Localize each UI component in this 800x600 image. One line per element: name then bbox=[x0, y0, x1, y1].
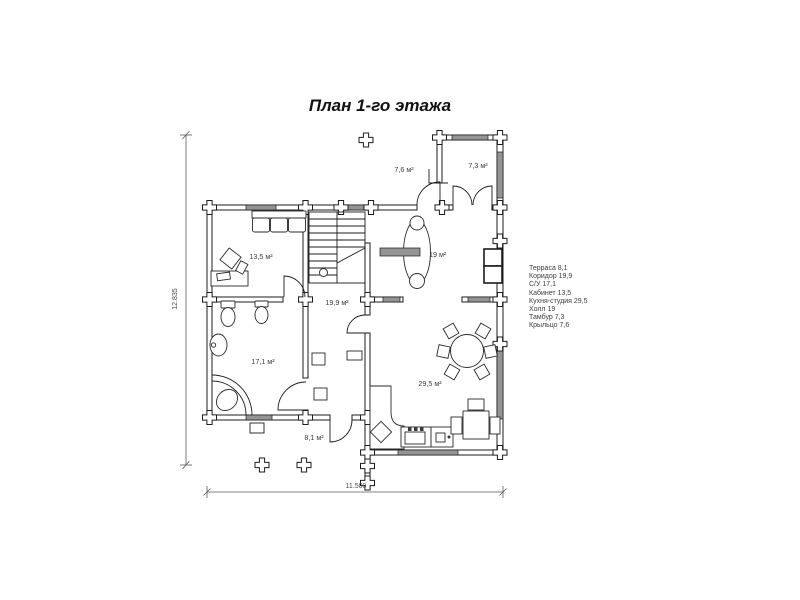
sink-icon bbox=[210, 334, 227, 356]
dining-table-icon bbox=[437, 323, 498, 380]
toilet-icon bbox=[221, 301, 235, 327]
log-end-crosses bbox=[203, 131, 508, 491]
legend-item-bathroom: С/У 17,1 bbox=[529, 281, 587, 289]
stove-icon bbox=[431, 427, 453, 447]
floor-plan-page: План 1-го этажа bbox=[0, 0, 800, 600]
bidet-icon bbox=[255, 301, 268, 324]
kitchen-counter-icon bbox=[370, 386, 404, 449]
legend-item-corridor: Коридор 19,9 bbox=[529, 273, 587, 281]
room-label-office: 13,5 м² bbox=[249, 252, 273, 261]
legend-item-porch: Крыльцо 7,6 bbox=[529, 322, 587, 330]
desk-icon bbox=[211, 248, 248, 286]
sofa-icon bbox=[252, 211, 306, 232]
page-title: План 1-го этажа bbox=[309, 96, 451, 115]
radiator-icon bbox=[312, 353, 325, 365]
room-label-hall: 19 м² bbox=[429, 250, 447, 259]
wardrobe-icon bbox=[484, 249, 502, 283]
room-label-tambour: 7,3 м² bbox=[468, 161, 488, 170]
height-dimension-label: 12.835 bbox=[172, 288, 179, 310]
radiator-icon bbox=[347, 351, 362, 360]
small-table-icon bbox=[451, 399, 500, 439]
room-label-terrace: 8,1 м² bbox=[304, 433, 324, 442]
width-dimension-label: 11.500 bbox=[346, 483, 367, 490]
legend-item-terrace: Терраса 8,1 bbox=[529, 265, 587, 273]
legend-item-office: Кабинет 13,5 bbox=[529, 290, 587, 298]
office-furniture bbox=[211, 211, 306, 286]
bathroom-fixtures bbox=[210, 301, 362, 433]
room-label-bathroom: 17,1 м² bbox=[251, 357, 275, 366]
room-legend: Терраса 8,1 Коридор 19,9 С/У 17,1 Кабине… bbox=[529, 265, 587, 331]
room-label-kitchen: 29,5 м² bbox=[418, 379, 442, 388]
kitchen-sink-icon bbox=[401, 427, 431, 447]
legend-item-kitchen: Кухня-студия 29,5 bbox=[529, 298, 587, 306]
staircase bbox=[309, 212, 365, 283]
sideboard-icon bbox=[380, 248, 420, 256]
room-label-corridor: 19,9 м² bbox=[325, 298, 349, 307]
floor-plan-drawing: План 1-го этажа bbox=[0, 0, 800, 600]
radiator-icon bbox=[314, 388, 327, 400]
legend-item-tambour: Тамбур 7,3 bbox=[529, 314, 587, 322]
terrace-step-icon bbox=[250, 423, 264, 433]
corner-bathtub-icon bbox=[212, 375, 252, 415]
legend-item-hall: Холл 19 bbox=[529, 306, 587, 314]
room-label-porch: 7,6 м² bbox=[394, 165, 414, 174]
hall-furniture bbox=[380, 169, 502, 289]
